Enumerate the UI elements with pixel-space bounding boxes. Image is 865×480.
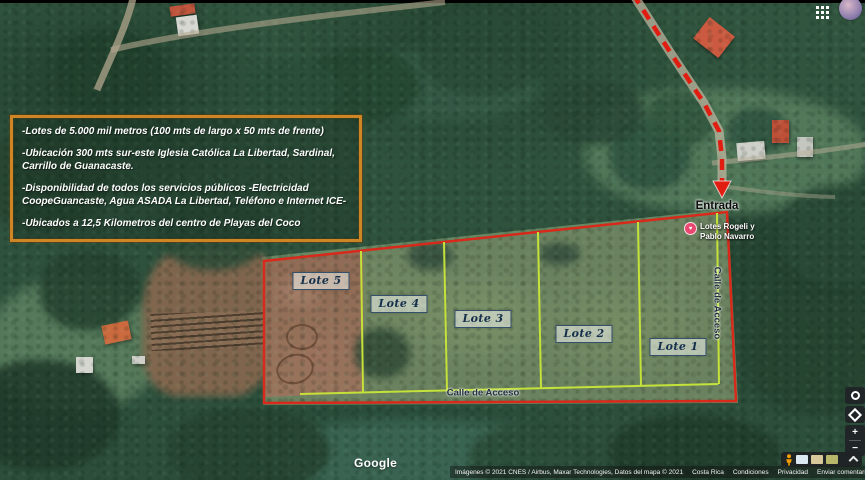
place-marker-line1: Lotes Rogeli y [700, 222, 755, 232]
satellite-map-canvas[interactable]: -Lotes de 5.000 mil metros (100 mts de l… [0, 0, 865, 480]
imagery-attribution: Imágenes © 2021 CNES / Airbus, Maxar Tec… [455, 469, 683, 476]
satellite-layer-thumbnail[interactable] [811, 455, 823, 464]
link-feedback[interactable]: Enviar comentario [817, 469, 865, 476]
top-letterbox-bar [0, 0, 865, 3]
lot1-label: Lote 1 [649, 338, 706, 356]
place-marker-line2: Pablo Navarro [700, 232, 755, 242]
lot2-label: Lote 2 [555, 325, 612, 343]
pegman-icon[interactable] [785, 454, 793, 466]
entrance-label: Entrada [696, 200, 739, 212]
zoom-out-button[interactable]: − [845, 441, 865, 456]
access-road-label-right: Calle de Acceso [712, 267, 723, 340]
map-layer-thumbnail[interactable] [796, 455, 808, 464]
tilt-icon [848, 407, 862, 421]
info-line-lot-size: -Lotes de 5.000 mil metros (100 mts de l… [22, 125, 350, 138]
place-pin-icon[interactable]: ♥ [684, 222, 697, 235]
attribution-bar: Imágenes © 2021 CNES / Airbus, Maxar Tec… [450, 466, 865, 478]
google-logo[interactable]: Google [354, 456, 397, 470]
listing-info-box: -Lotes de 5.000 mil metros (100 mts de l… [10, 115, 362, 242]
google-apps-grid-icon[interactable] [816, 6, 819, 9]
target-icon [851, 391, 860, 400]
tilt-view-button[interactable] [845, 406, 865, 423]
info-line-location: -Ubicación 300 mts sur-este Iglesia Cató… [22, 147, 350, 173]
my-location-button[interactable] [845, 387, 865, 404]
link-privacy[interactable]: Privacidad [778, 469, 808, 476]
zoom-controls[interactable]: + − [845, 425, 865, 456]
place-marker[interactable]: ♥ Lotes Rogeli y Pablo Navarro [684, 222, 755, 243]
place-marker-label: Lotes Rogeli y Pablo Navarro [700, 222, 755, 243]
info-line-distance: -Ubicados a 12,5 Kilometros del centro d… [22, 217, 350, 230]
lot4-label: Lote 4 [370, 295, 427, 313]
link-terms[interactable]: Condiciones [733, 469, 769, 476]
info-line-services: -Disponibilidad de todos los servicios p… [22, 182, 350, 208]
access-road-label-bottom: Calle de Acceso [447, 388, 520, 399]
link-country[interactable]: Costa Rica [692, 469, 724, 476]
lot5-label: Lote 5 [292, 272, 349, 290]
terrain-layer-thumbnail[interactable] [826, 455, 838, 464]
lot3-label: Lote 3 [454, 310, 511, 328]
zoom-in-button[interactable]: + [845, 425, 865, 440]
collapse-chevron-icon[interactable] [849, 456, 859, 466]
